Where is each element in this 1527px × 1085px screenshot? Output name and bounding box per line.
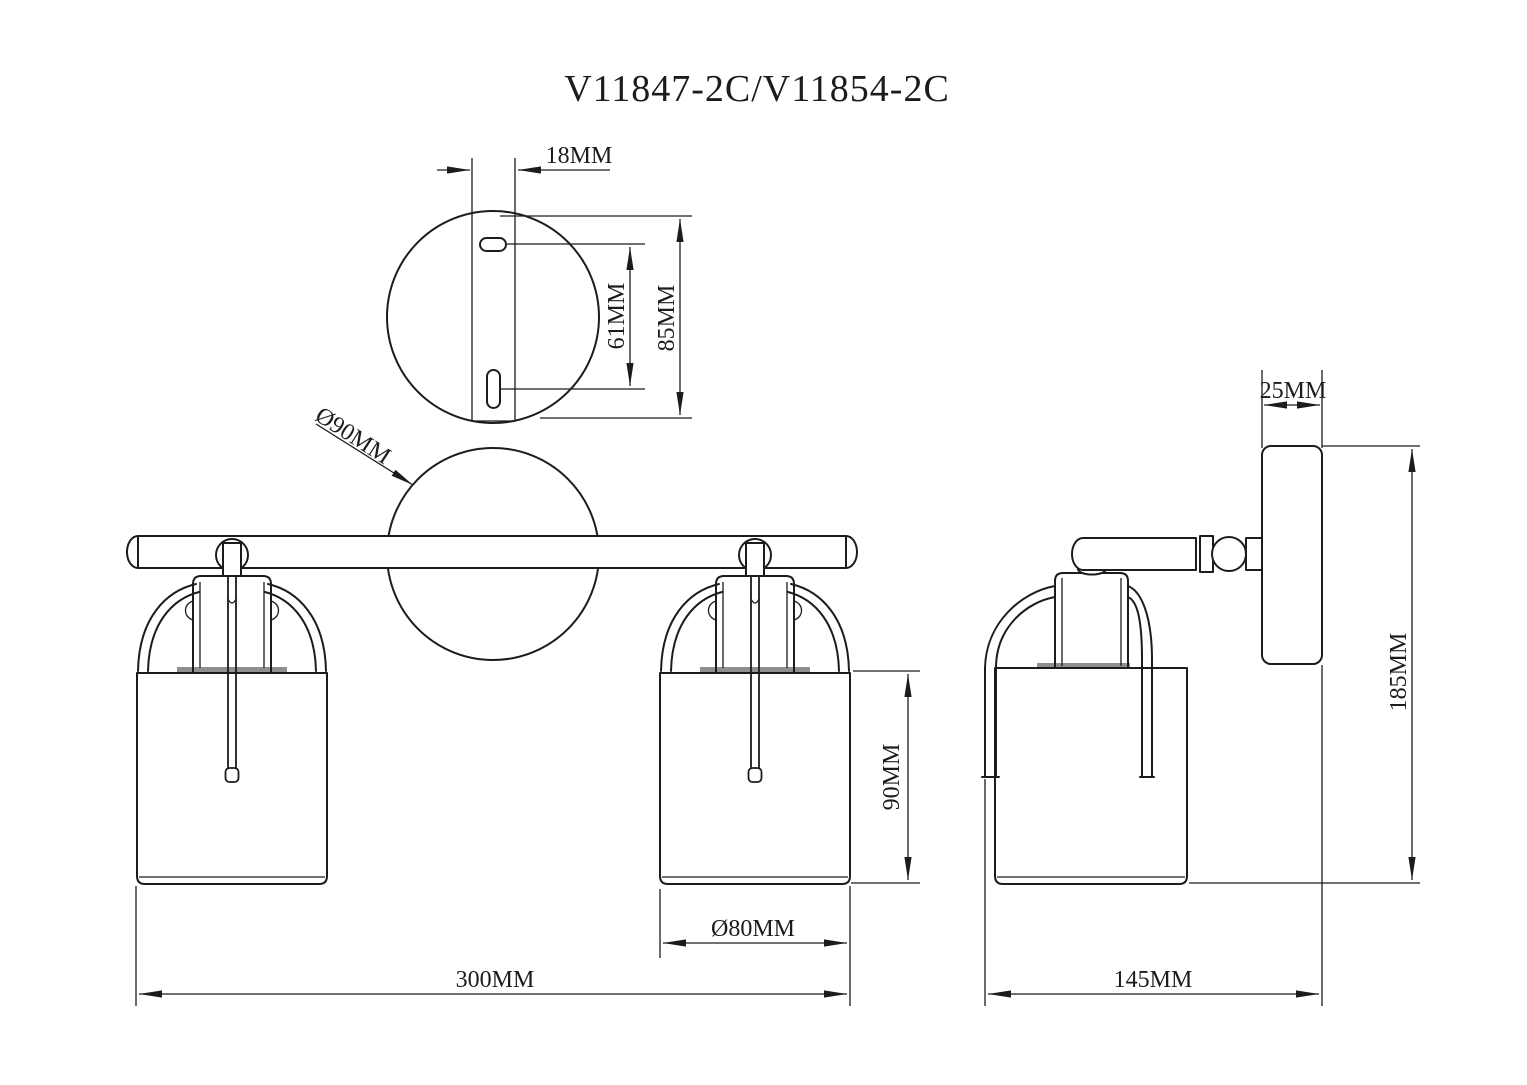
lamp-left	[137, 539, 327, 884]
glass-shade-side	[995, 668, 1187, 884]
lamp-right	[660, 539, 850, 884]
ball-joint	[1212, 537, 1246, 571]
wall-stub	[1246, 538, 1262, 570]
wall-plate	[1262, 446, 1322, 664]
socket-cup-side	[1055, 573, 1128, 668]
dim-label-90mm-diameter: Ø90MM	[311, 402, 396, 470]
cage-wire-side-left	[982, 586, 1055, 777]
dim-label-85mm: 85MM	[654, 285, 680, 352]
drawing-title: V11847-2C/V11854-2C	[564, 68, 950, 110]
dim-label-80mm-diameter: Ø80MM	[711, 916, 795, 942]
view-top: 18MM 61MM 85MM	[387, 143, 692, 423]
keyhole-slot-top	[480, 238, 506, 251]
dim-label-300mm: 300MM	[456, 967, 535, 993]
dimension-18mm: 18MM	[437, 143, 612, 170]
dimension-145mm: 145MM	[985, 665, 1322, 1006]
dimension-diameter-90mm: Ø90MM	[311, 402, 413, 485]
dimension-300mm: 300MM	[136, 886, 847, 1006]
dimension-25mm: 25MM	[1260, 370, 1327, 448]
dim-label-61mm: 61MM	[604, 283, 630, 350]
keyhole-slot-bottom	[487, 370, 500, 408]
dimension-85mm: 85MM	[500, 216, 692, 418]
drawing-sheet: V11847-2C/V11854-2C 18MM 61MM 85MM	[0, 0, 1527, 1080]
dimension-90mm-height: 90MM	[851, 671, 920, 883]
dimension-diameter-80mm: Ø80MM	[660, 886, 850, 1006]
arm-bar-side	[1072, 538, 1196, 570]
dimension-61mm: 61MM	[501, 244, 645, 389]
cage-wire-side-right	[1128, 586, 1154, 777]
dim-label-25mm: 25MM	[1260, 378, 1327, 404]
technical-drawing: V11847-2C/V11854-2C 18MM 61MM 85MM	[0, 0, 1527, 1080]
dim-label-185mm: 185MM	[1386, 633, 1412, 712]
dim-label-145mm: 145MM	[1114, 967, 1193, 993]
dim-label-90mm-height: 90MM	[879, 744, 905, 811]
socket-cup-side-inner-lines	[1062, 578, 1121, 666]
view-side: 25MM 185MM 145MM	[982, 370, 1420, 1006]
view-front: Ø90MM 90MM Ø80MM 300MM	[127, 402, 920, 1006]
dim-label-18mm: 18MM	[546, 143, 613, 169]
